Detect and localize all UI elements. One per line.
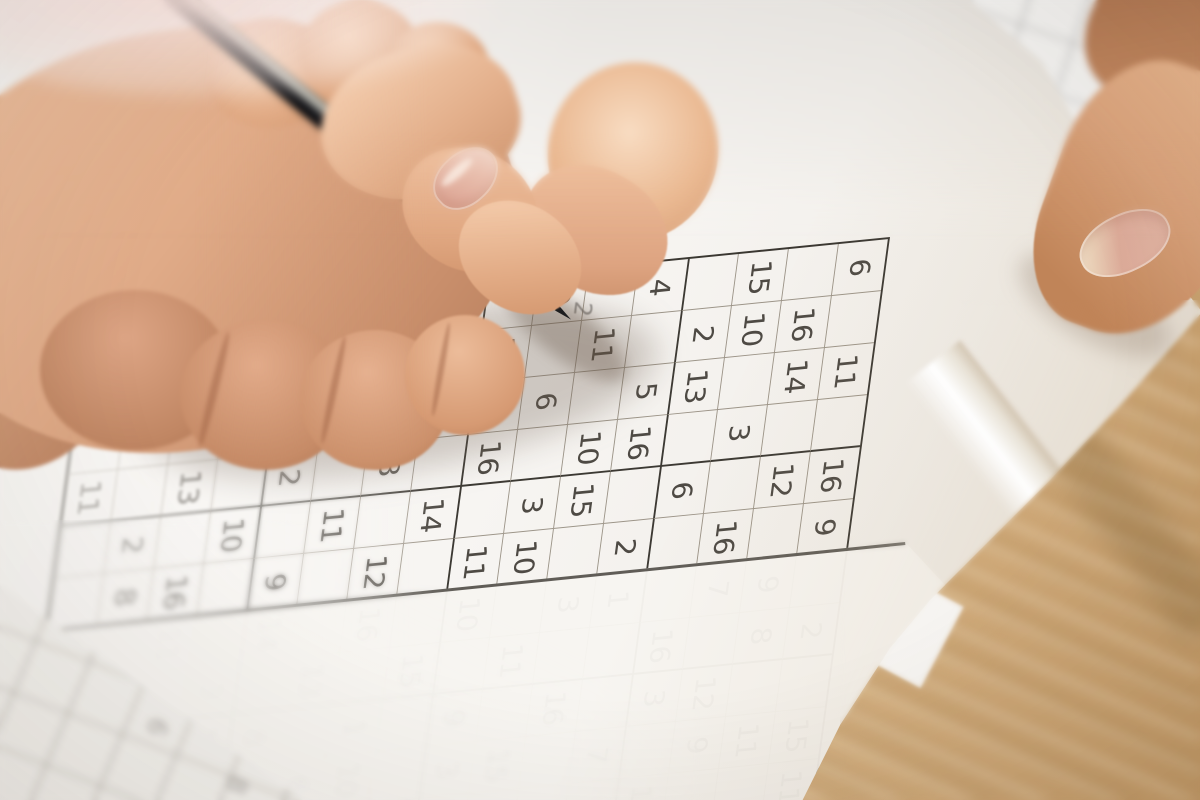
vignette [0,0,1200,800]
photo-scene: 9 6 8 10 16 2 10 15 8 611169215118316141… [0,0,1200,800]
